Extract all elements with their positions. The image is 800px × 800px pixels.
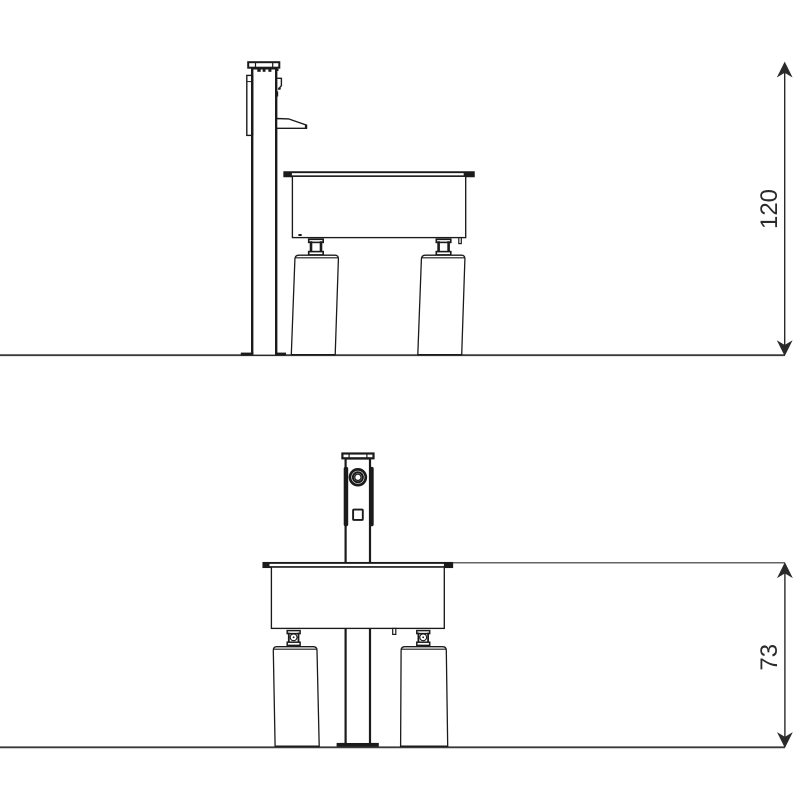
svg-text:73: 73 (756, 644, 783, 671)
svg-text:120: 120 (756, 189, 783, 229)
